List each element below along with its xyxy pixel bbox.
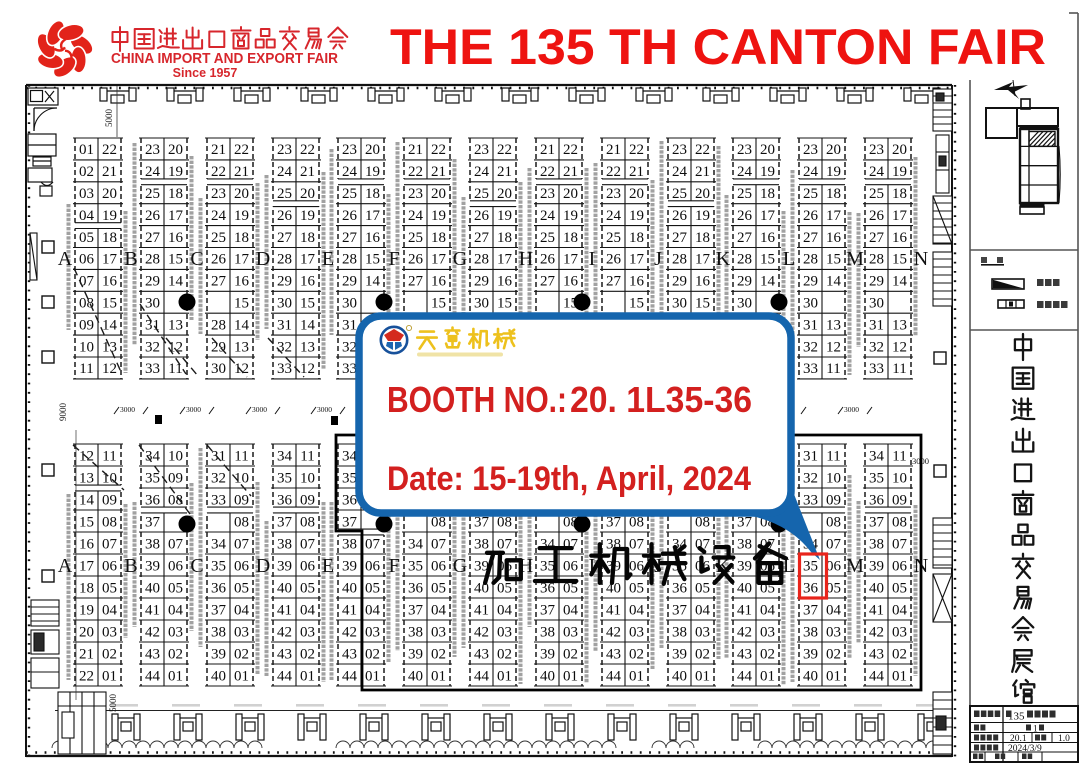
svg-text:14: 14	[234, 317, 250, 333]
svg-text:16: 16	[431, 274, 447, 290]
svg-text:27: 27	[540, 274, 556, 290]
svg-text:17: 17	[431, 252, 447, 268]
svg-text:09: 09	[168, 470, 183, 486]
svg-text:08: 08	[300, 514, 315, 530]
svg-text:3000: 3000	[844, 405, 859, 414]
svg-text:18: 18	[695, 230, 710, 246]
svg-text:25: 25	[342, 186, 357, 202]
svg-text:15: 15	[102, 296, 117, 312]
svg-text:3000: 3000	[317, 405, 332, 414]
svg-text:16: 16	[365, 230, 381, 246]
svg-text:26: 26	[606, 252, 622, 268]
svg-text:2024/3/9: 2024/3/9	[1008, 744, 1042, 754]
svg-text:20: 20	[892, 142, 907, 158]
svg-text:04: 04	[234, 602, 250, 618]
svg-text:37: 37	[211, 602, 227, 618]
svg-text:04: 04	[102, 602, 118, 618]
svg-text:25: 25	[474, 186, 489, 202]
svg-text:20: 20	[300, 186, 315, 202]
svg-text:36: 36	[803, 580, 819, 596]
svg-text:I: I	[589, 248, 596, 270]
svg-text:13: 13	[168, 317, 183, 333]
svg-text:24: 24	[211, 208, 227, 224]
svg-text:11: 11	[826, 361, 840, 377]
svg-text:44: 44	[145, 668, 161, 684]
svg-text:38: 38	[803, 624, 818, 640]
svg-text:22: 22	[606, 164, 621, 180]
svg-text:Since 1957: Since 1957	[173, 66, 238, 80]
svg-text:03: 03	[300, 624, 315, 640]
svg-text:40: 40	[342, 580, 357, 596]
svg-text:38: 38	[869, 536, 884, 552]
svg-text:03: 03	[168, 624, 183, 640]
svg-text:20: 20	[365, 142, 380, 158]
svg-text:32: 32	[277, 339, 292, 355]
svg-text:27: 27	[672, 230, 688, 246]
svg-text:21: 21	[431, 164, 446, 180]
svg-text:35: 35	[211, 558, 226, 574]
svg-text:11: 11	[79, 361, 93, 377]
svg-text:06: 06	[365, 558, 381, 574]
svg-text:23: 23	[606, 186, 621, 202]
svg-text:36: 36	[672, 580, 688, 596]
svg-text:26: 26	[672, 208, 688, 224]
svg-text:02: 02	[234, 646, 249, 662]
svg-text:03: 03	[760, 624, 775, 640]
svg-text:05: 05	[234, 580, 249, 596]
svg-text:19: 19	[234, 208, 249, 224]
svg-text:J: J	[654, 248, 662, 270]
svg-text:15: 15	[365, 252, 380, 268]
svg-text:21: 21	[102, 164, 117, 180]
svg-text:22: 22	[563, 142, 578, 158]
svg-text:29: 29	[672, 274, 687, 290]
svg-text:21: 21	[234, 164, 249, 180]
svg-text:23: 23	[342, 142, 357, 158]
svg-text:19: 19	[629, 208, 644, 224]
svg-text:20: 20	[79, 624, 94, 640]
svg-text:07: 07	[826, 536, 842, 552]
svg-text:38: 38	[342, 536, 357, 552]
svg-text:02: 02	[695, 646, 710, 662]
svg-text:M: M	[846, 248, 864, 270]
svg-text:01: 01	[892, 668, 907, 684]
svg-text:37: 37	[540, 602, 556, 618]
svg-text:17: 17	[234, 252, 250, 268]
svg-text:27: 27	[408, 274, 424, 290]
svg-text:E: E	[322, 555, 334, 577]
svg-text:B: B	[124, 555, 137, 577]
svg-text:15: 15	[892, 252, 907, 268]
svg-text:BOOTH NO.:: BOOTH NO.:	[387, 379, 567, 420]
svg-text:17: 17	[563, 252, 579, 268]
svg-text:22: 22	[540, 164, 555, 180]
svg-text:42: 42	[737, 624, 752, 640]
svg-text:40: 40	[211, 668, 226, 684]
svg-text:03: 03	[79, 186, 94, 202]
svg-text:15: 15	[234, 296, 249, 312]
svg-text:21: 21	[79, 646, 94, 662]
svg-text:12: 12	[826, 339, 841, 355]
svg-text:11: 11	[102, 448, 116, 464]
svg-text:39: 39	[145, 558, 160, 574]
svg-text:M: M	[846, 555, 864, 577]
svg-text:19: 19	[695, 208, 710, 224]
svg-text:THE 135 TH CANTON FAIR: THE 135 TH CANTON FAIR	[390, 19, 1046, 75]
svg-text:04: 04	[563, 602, 579, 618]
svg-text:09: 09	[102, 492, 117, 508]
svg-text:16: 16	[497, 274, 513, 290]
svg-text:19: 19	[497, 208, 512, 224]
svg-text:44: 44	[737, 668, 753, 684]
svg-text:28: 28	[277, 252, 292, 268]
svg-text:06: 06	[79, 252, 95, 268]
svg-text:35: 35	[342, 470, 357, 486]
svg-text:17: 17	[695, 252, 711, 268]
svg-text:Date: 15-19th, April, 2024: Date: 15-19th, April, 2024	[387, 460, 751, 498]
svg-text:15: 15	[431, 296, 446, 312]
svg-text:37: 37	[672, 602, 688, 618]
svg-text:21: 21	[497, 164, 512, 180]
svg-text:13: 13	[826, 317, 841, 333]
svg-text:25: 25	[803, 186, 818, 202]
svg-text:29: 29	[869, 274, 884, 290]
svg-text:20: 20	[431, 186, 446, 202]
svg-text:17: 17	[826, 208, 842, 224]
svg-text:13: 13	[79, 470, 94, 486]
svg-text:24: 24	[606, 208, 622, 224]
svg-text:16: 16	[695, 274, 711, 290]
svg-text:29: 29	[211, 339, 226, 355]
svg-text:15: 15	[79, 514, 94, 530]
svg-text:30: 30	[145, 296, 160, 312]
svg-text:06: 06	[826, 558, 842, 574]
svg-text:24: 24	[672, 164, 688, 180]
svg-text:F: F	[388, 248, 399, 270]
svg-text:03: 03	[234, 624, 249, 640]
svg-text:24: 24	[737, 164, 753, 180]
svg-text:38: 38	[211, 624, 226, 640]
svg-text:42: 42	[342, 624, 357, 640]
svg-text:20: 20	[168, 142, 183, 158]
svg-text:05: 05	[497, 580, 512, 596]
svg-text:03: 03	[826, 624, 841, 640]
svg-text:14: 14	[168, 274, 184, 290]
svg-text:19: 19	[826, 164, 841, 180]
svg-text:02: 02	[365, 646, 380, 662]
svg-text:10: 10	[300, 470, 315, 486]
svg-text:25: 25	[672, 186, 687, 202]
svg-text:15: 15	[168, 252, 183, 268]
svg-text:05: 05	[365, 580, 380, 596]
svg-text:25: 25	[277, 186, 292, 202]
svg-text:04: 04	[168, 602, 184, 618]
svg-text:28: 28	[672, 252, 687, 268]
svg-text:42: 42	[474, 624, 489, 640]
svg-text:28: 28	[145, 252, 160, 268]
svg-text:16: 16	[102, 274, 118, 290]
svg-text:04: 04	[695, 602, 711, 618]
svg-text:G: G	[453, 248, 467, 270]
svg-text:27: 27	[474, 230, 490, 246]
svg-text:11: 11	[892, 361, 906, 377]
svg-text:04: 04	[431, 602, 447, 618]
svg-text:44: 44	[342, 668, 358, 684]
svg-text:32: 32	[803, 470, 818, 486]
svg-text:05: 05	[695, 580, 710, 596]
svg-text:14: 14	[102, 317, 118, 333]
svg-text:25: 25	[540, 230, 555, 246]
svg-text:16: 16	[826, 230, 842, 246]
svg-text:3000: 3000	[186, 405, 201, 414]
svg-text:27: 27	[606, 274, 622, 290]
svg-text:35: 35	[145, 470, 160, 486]
svg-text:22: 22	[695, 142, 710, 158]
svg-text:15: 15	[826, 252, 841, 268]
svg-text:D: D	[256, 248, 270, 270]
svg-text:34: 34	[408, 536, 424, 552]
svg-text:31: 31	[277, 317, 292, 333]
svg-text:38: 38	[540, 624, 555, 640]
svg-text:22: 22	[629, 142, 644, 158]
svg-text:05: 05	[629, 580, 644, 596]
svg-text:07: 07	[629, 536, 645, 552]
svg-text:21: 21	[408, 142, 423, 158]
svg-text:06: 06	[102, 558, 118, 574]
svg-text:26: 26	[145, 208, 161, 224]
svg-text:12: 12	[300, 361, 315, 377]
svg-text:38: 38	[145, 536, 160, 552]
svg-text:30: 30	[211, 361, 226, 377]
svg-text:36: 36	[869, 492, 885, 508]
svg-text:41: 41	[277, 602, 292, 618]
svg-text:02: 02	[168, 646, 183, 662]
svg-text:C: C	[190, 248, 203, 270]
svg-text:04: 04	[79, 208, 95, 224]
svg-text:06: 06	[892, 558, 908, 574]
svg-text:08: 08	[826, 514, 841, 530]
svg-text:16: 16	[168, 230, 184, 246]
svg-text:3000: 3000	[252, 405, 267, 414]
svg-text:35: 35	[277, 470, 292, 486]
svg-text:39: 39	[540, 646, 555, 662]
svg-text:32: 32	[803, 339, 818, 355]
svg-text:27: 27	[869, 230, 885, 246]
svg-text:07: 07	[168, 536, 184, 552]
svg-text:23: 23	[474, 142, 489, 158]
svg-text:40: 40	[869, 580, 884, 596]
svg-text:22: 22	[431, 142, 446, 158]
svg-text:22: 22	[300, 142, 315, 158]
svg-text:05: 05	[826, 580, 841, 596]
svg-text:F: F	[388, 555, 399, 577]
svg-text:11: 11	[892, 448, 906, 464]
svg-text:03: 03	[365, 624, 380, 640]
svg-text:32: 32	[211, 470, 226, 486]
svg-text:19: 19	[892, 164, 907, 180]
svg-text:26: 26	[803, 208, 819, 224]
svg-text:04: 04	[629, 602, 645, 618]
svg-text:34: 34	[342, 448, 358, 464]
svg-text:17: 17	[760, 208, 776, 224]
svg-text:19: 19	[300, 208, 315, 224]
svg-text:21: 21	[606, 142, 621, 158]
svg-text:26: 26	[408, 252, 424, 268]
svg-text:01: 01	[168, 668, 183, 684]
svg-text:17: 17	[102, 252, 118, 268]
svg-text:37: 37	[408, 602, 424, 618]
svg-text:01: 01	[695, 668, 710, 684]
svg-text:44: 44	[474, 668, 490, 684]
svg-text:30: 30	[737, 296, 752, 312]
svg-text:43: 43	[474, 646, 489, 662]
svg-text:01: 01	[431, 668, 446, 684]
svg-text:23: 23	[145, 142, 160, 158]
svg-text:E: E	[322, 248, 334, 270]
svg-text:02: 02	[629, 646, 644, 662]
svg-text:27: 27	[277, 230, 293, 246]
svg-text:02: 02	[431, 646, 446, 662]
svg-text:20: 20	[102, 186, 117, 202]
svg-text:06: 06	[300, 558, 316, 574]
svg-text:07: 07	[234, 536, 250, 552]
svg-text:43: 43	[606, 646, 621, 662]
svg-text:28: 28	[211, 317, 226, 333]
svg-text:43: 43	[737, 646, 752, 662]
svg-text:C: C	[190, 555, 203, 577]
svg-text:04: 04	[892, 602, 908, 618]
svg-text:41: 41	[606, 602, 621, 618]
svg-text:30: 30	[342, 296, 357, 312]
svg-text:16: 16	[79, 536, 95, 552]
svg-text:39: 39	[408, 646, 423, 662]
svg-text:28: 28	[342, 252, 357, 268]
svg-text:CHINA IMPORT AND EXPORT FAIR: CHINA IMPORT AND EXPORT FAIR	[111, 51, 338, 67]
svg-text:L: L	[783, 248, 795, 270]
svg-text:25: 25	[737, 186, 752, 202]
svg-text:03: 03	[892, 624, 907, 640]
svg-text:07: 07	[431, 536, 447, 552]
svg-text:39: 39	[211, 646, 226, 662]
svg-text:03: 03	[497, 624, 512, 640]
svg-text:10: 10	[79, 339, 94, 355]
svg-text:43: 43	[342, 646, 357, 662]
svg-text:07: 07	[365, 536, 381, 552]
svg-text:12: 12	[892, 339, 907, 355]
svg-text:26: 26	[474, 208, 490, 224]
svg-text:05: 05	[431, 580, 446, 596]
svg-text:17: 17	[365, 208, 381, 224]
svg-text:26: 26	[277, 208, 293, 224]
svg-text:01: 01	[234, 668, 249, 684]
svg-text:36: 36	[145, 492, 161, 508]
svg-text:18: 18	[431, 230, 446, 246]
svg-text:24: 24	[342, 164, 358, 180]
svg-text:15: 15	[497, 296, 512, 312]
svg-text:42: 42	[869, 624, 884, 640]
svg-text:22: 22	[234, 142, 249, 158]
svg-text:28: 28	[737, 252, 752, 268]
svg-text:03: 03	[695, 624, 710, 640]
svg-text:D: D	[256, 555, 270, 577]
svg-text:36: 36	[342, 492, 358, 508]
svg-text:32: 32	[342, 339, 357, 355]
svg-text:29: 29	[474, 274, 489, 290]
svg-text:21: 21	[695, 164, 710, 180]
svg-text:09: 09	[79, 317, 94, 333]
svg-text:39: 39	[869, 558, 884, 574]
svg-text:33: 33	[211, 492, 226, 508]
svg-text:41: 41	[342, 602, 357, 618]
svg-text:07: 07	[892, 536, 908, 552]
svg-text:18: 18	[497, 230, 512, 246]
svg-text:01: 01	[300, 668, 315, 684]
svg-text:23: 23	[672, 142, 687, 158]
svg-text:19: 19	[760, 164, 775, 180]
svg-text:06: 06	[168, 558, 184, 574]
svg-text:11: 11	[168, 361, 182, 377]
svg-text:1.0: 1.0	[1058, 734, 1070, 744]
svg-text:02: 02	[497, 646, 512, 662]
svg-text:06: 06	[431, 558, 447, 574]
svg-text:21: 21	[629, 164, 644, 180]
svg-text:08: 08	[102, 514, 117, 530]
svg-text:05: 05	[300, 580, 315, 596]
svg-text:5000: 5000	[104, 109, 114, 128]
svg-text:06: 06	[563, 558, 579, 574]
svg-text:11: 11	[234, 448, 248, 464]
svg-text:22: 22	[102, 142, 117, 158]
svg-text:38: 38	[408, 624, 423, 640]
svg-text:16: 16	[234, 274, 250, 290]
svg-text:19: 19	[79, 602, 94, 618]
svg-text:18: 18	[168, 186, 183, 202]
svg-text:23: 23	[540, 186, 555, 202]
svg-text:09: 09	[892, 492, 907, 508]
svg-text:43: 43	[145, 646, 160, 662]
svg-text:25: 25	[408, 230, 423, 246]
svg-text:20: 20	[826, 142, 841, 158]
svg-text:06: 06	[234, 558, 250, 574]
svg-text:23: 23	[869, 142, 884, 158]
svg-text:13: 13	[102, 339, 117, 355]
svg-text:20: 20	[629, 186, 644, 202]
svg-text:01: 01	[79, 142, 94, 158]
svg-text:14: 14	[760, 274, 776, 290]
svg-text:01: 01	[365, 668, 380, 684]
svg-text:04: 04	[760, 602, 776, 618]
svg-text:1: 1	[1033, 725, 1038, 735]
svg-text:31: 31	[803, 448, 818, 464]
svg-text:39: 39	[672, 646, 687, 662]
svg-text:16: 16	[892, 230, 908, 246]
svg-text:29: 29	[145, 274, 160, 290]
svg-text:07: 07	[102, 536, 118, 552]
svg-text:18: 18	[79, 580, 94, 596]
svg-text:24: 24	[869, 164, 885, 180]
svg-text:44: 44	[606, 668, 622, 684]
svg-text:16: 16	[760, 230, 776, 246]
svg-text:43: 43	[277, 646, 292, 662]
svg-text:18: 18	[234, 230, 249, 246]
svg-text:37: 37	[145, 514, 161, 530]
svg-text:23: 23	[803, 142, 818, 158]
svg-text:11: 11	[300, 448, 314, 464]
svg-text:14: 14	[365, 274, 381, 290]
svg-text:17: 17	[79, 558, 95, 574]
svg-text:02: 02	[102, 646, 117, 662]
svg-text:26: 26	[342, 208, 358, 224]
